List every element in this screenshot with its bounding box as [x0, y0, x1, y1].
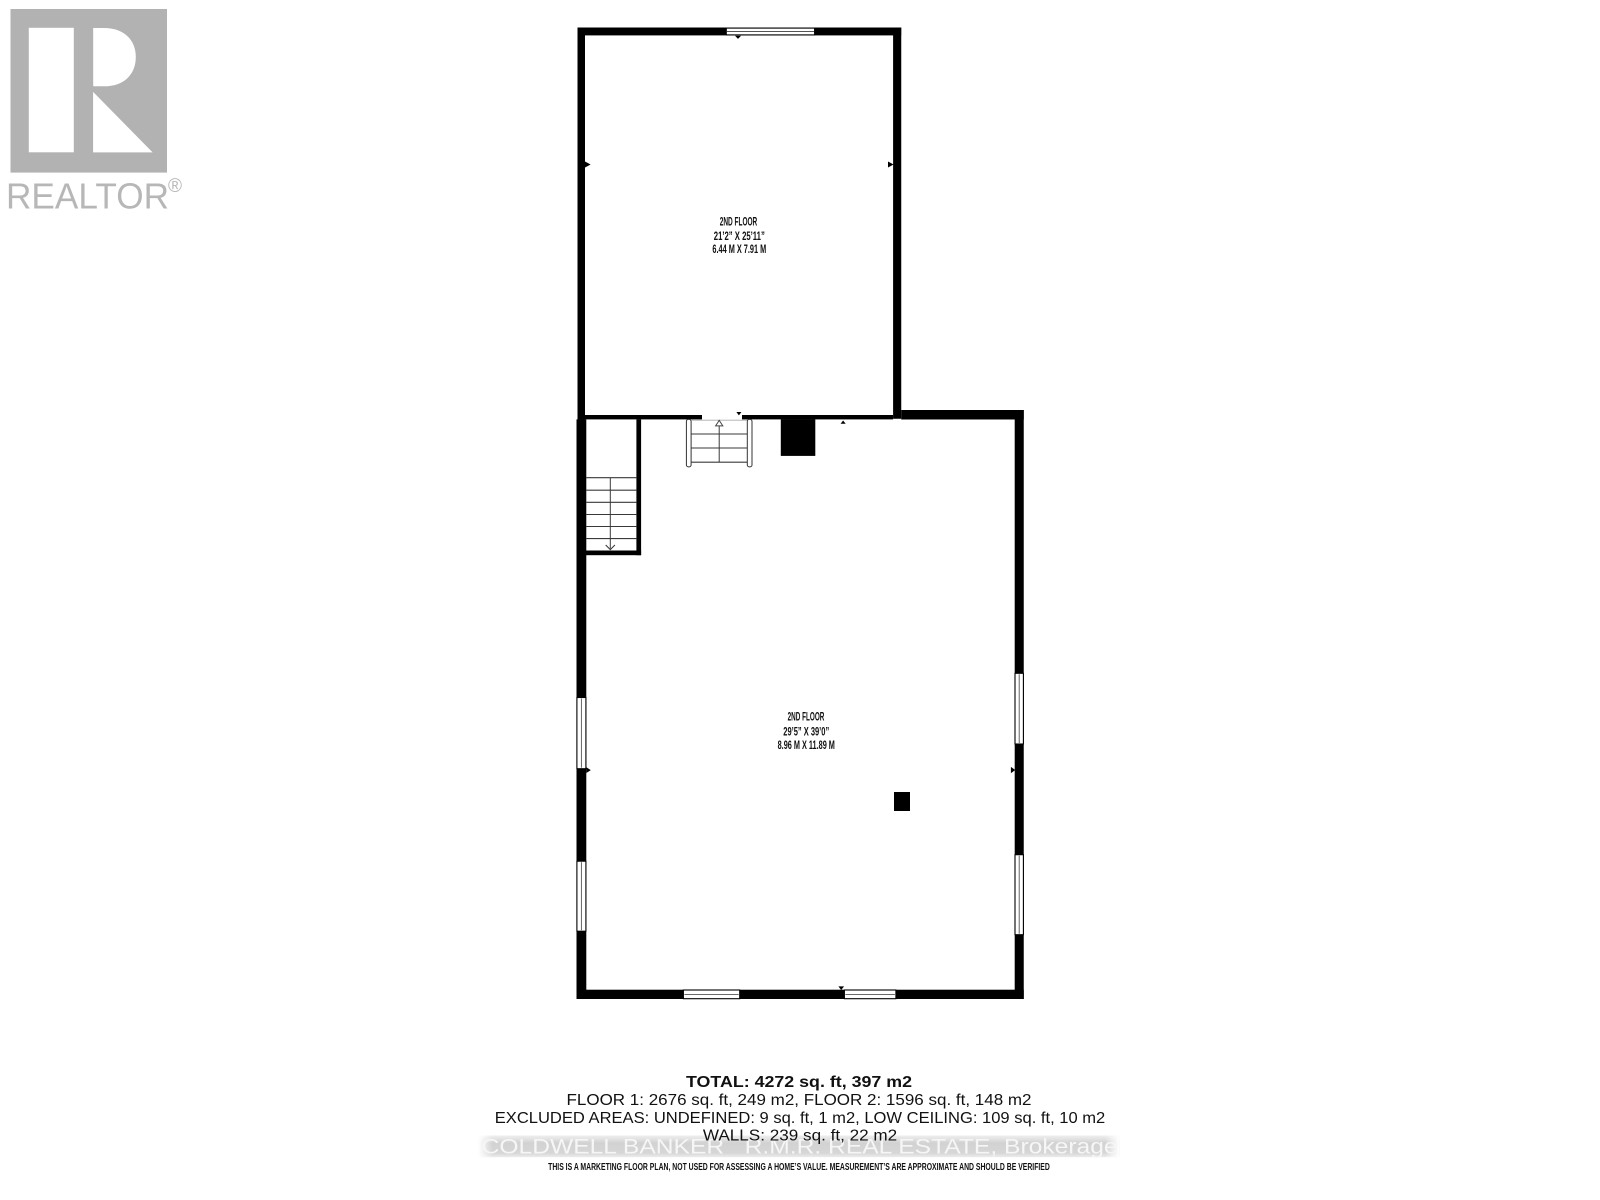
svg-text:®: ® [168, 176, 182, 197]
svg-text:FLOOR 1: 2676 sq. ft, 249 m2,: FLOOR 1: 2676 sq. ft, 249 m2, FLOOR 2: 1… [567, 1092, 1032, 1109]
svg-text:TOTAL: 4272 sq. ft, 397 m2: TOTAL: 4272 sq. ft, 397 m2 [686, 1074, 912, 1091]
svg-text:2ND FLOOR: 2ND FLOOR [720, 216, 758, 228]
svg-text:EXCLUDED AREAS: UNDEFINED: 9 s: EXCLUDED AREAS: UNDEFINED: 9 sq. ft, 1 m… [495, 1110, 1106, 1127]
svg-text:29’5” X 39’0”: 29’5” X 39’0” [783, 727, 829, 739]
svg-text:8.96 M X 11.89 M: 8.96 M X 11.89 M [778, 740, 835, 752]
svg-text:2ND FLOOR: 2ND FLOOR [788, 712, 825, 724]
svg-text:THIS IS A MARKETING FLOOR PLAN: THIS IS A MARKETING FLOOR PLAN, NOT USED… [548, 1162, 1050, 1173]
svg-text:REALTOR: REALTOR [6, 176, 169, 217]
svg-text:WALLS: 239 sq. ft, 22 m2: WALLS: 239 sq. ft, 22 m2 [703, 1128, 897, 1145]
svg-text:6.44 M X 7.91 M: 6.44 M X 7.91 M [712, 244, 766, 256]
svg-text:21’2” X 25’11”: 21’2” X 25’11” [714, 231, 765, 243]
